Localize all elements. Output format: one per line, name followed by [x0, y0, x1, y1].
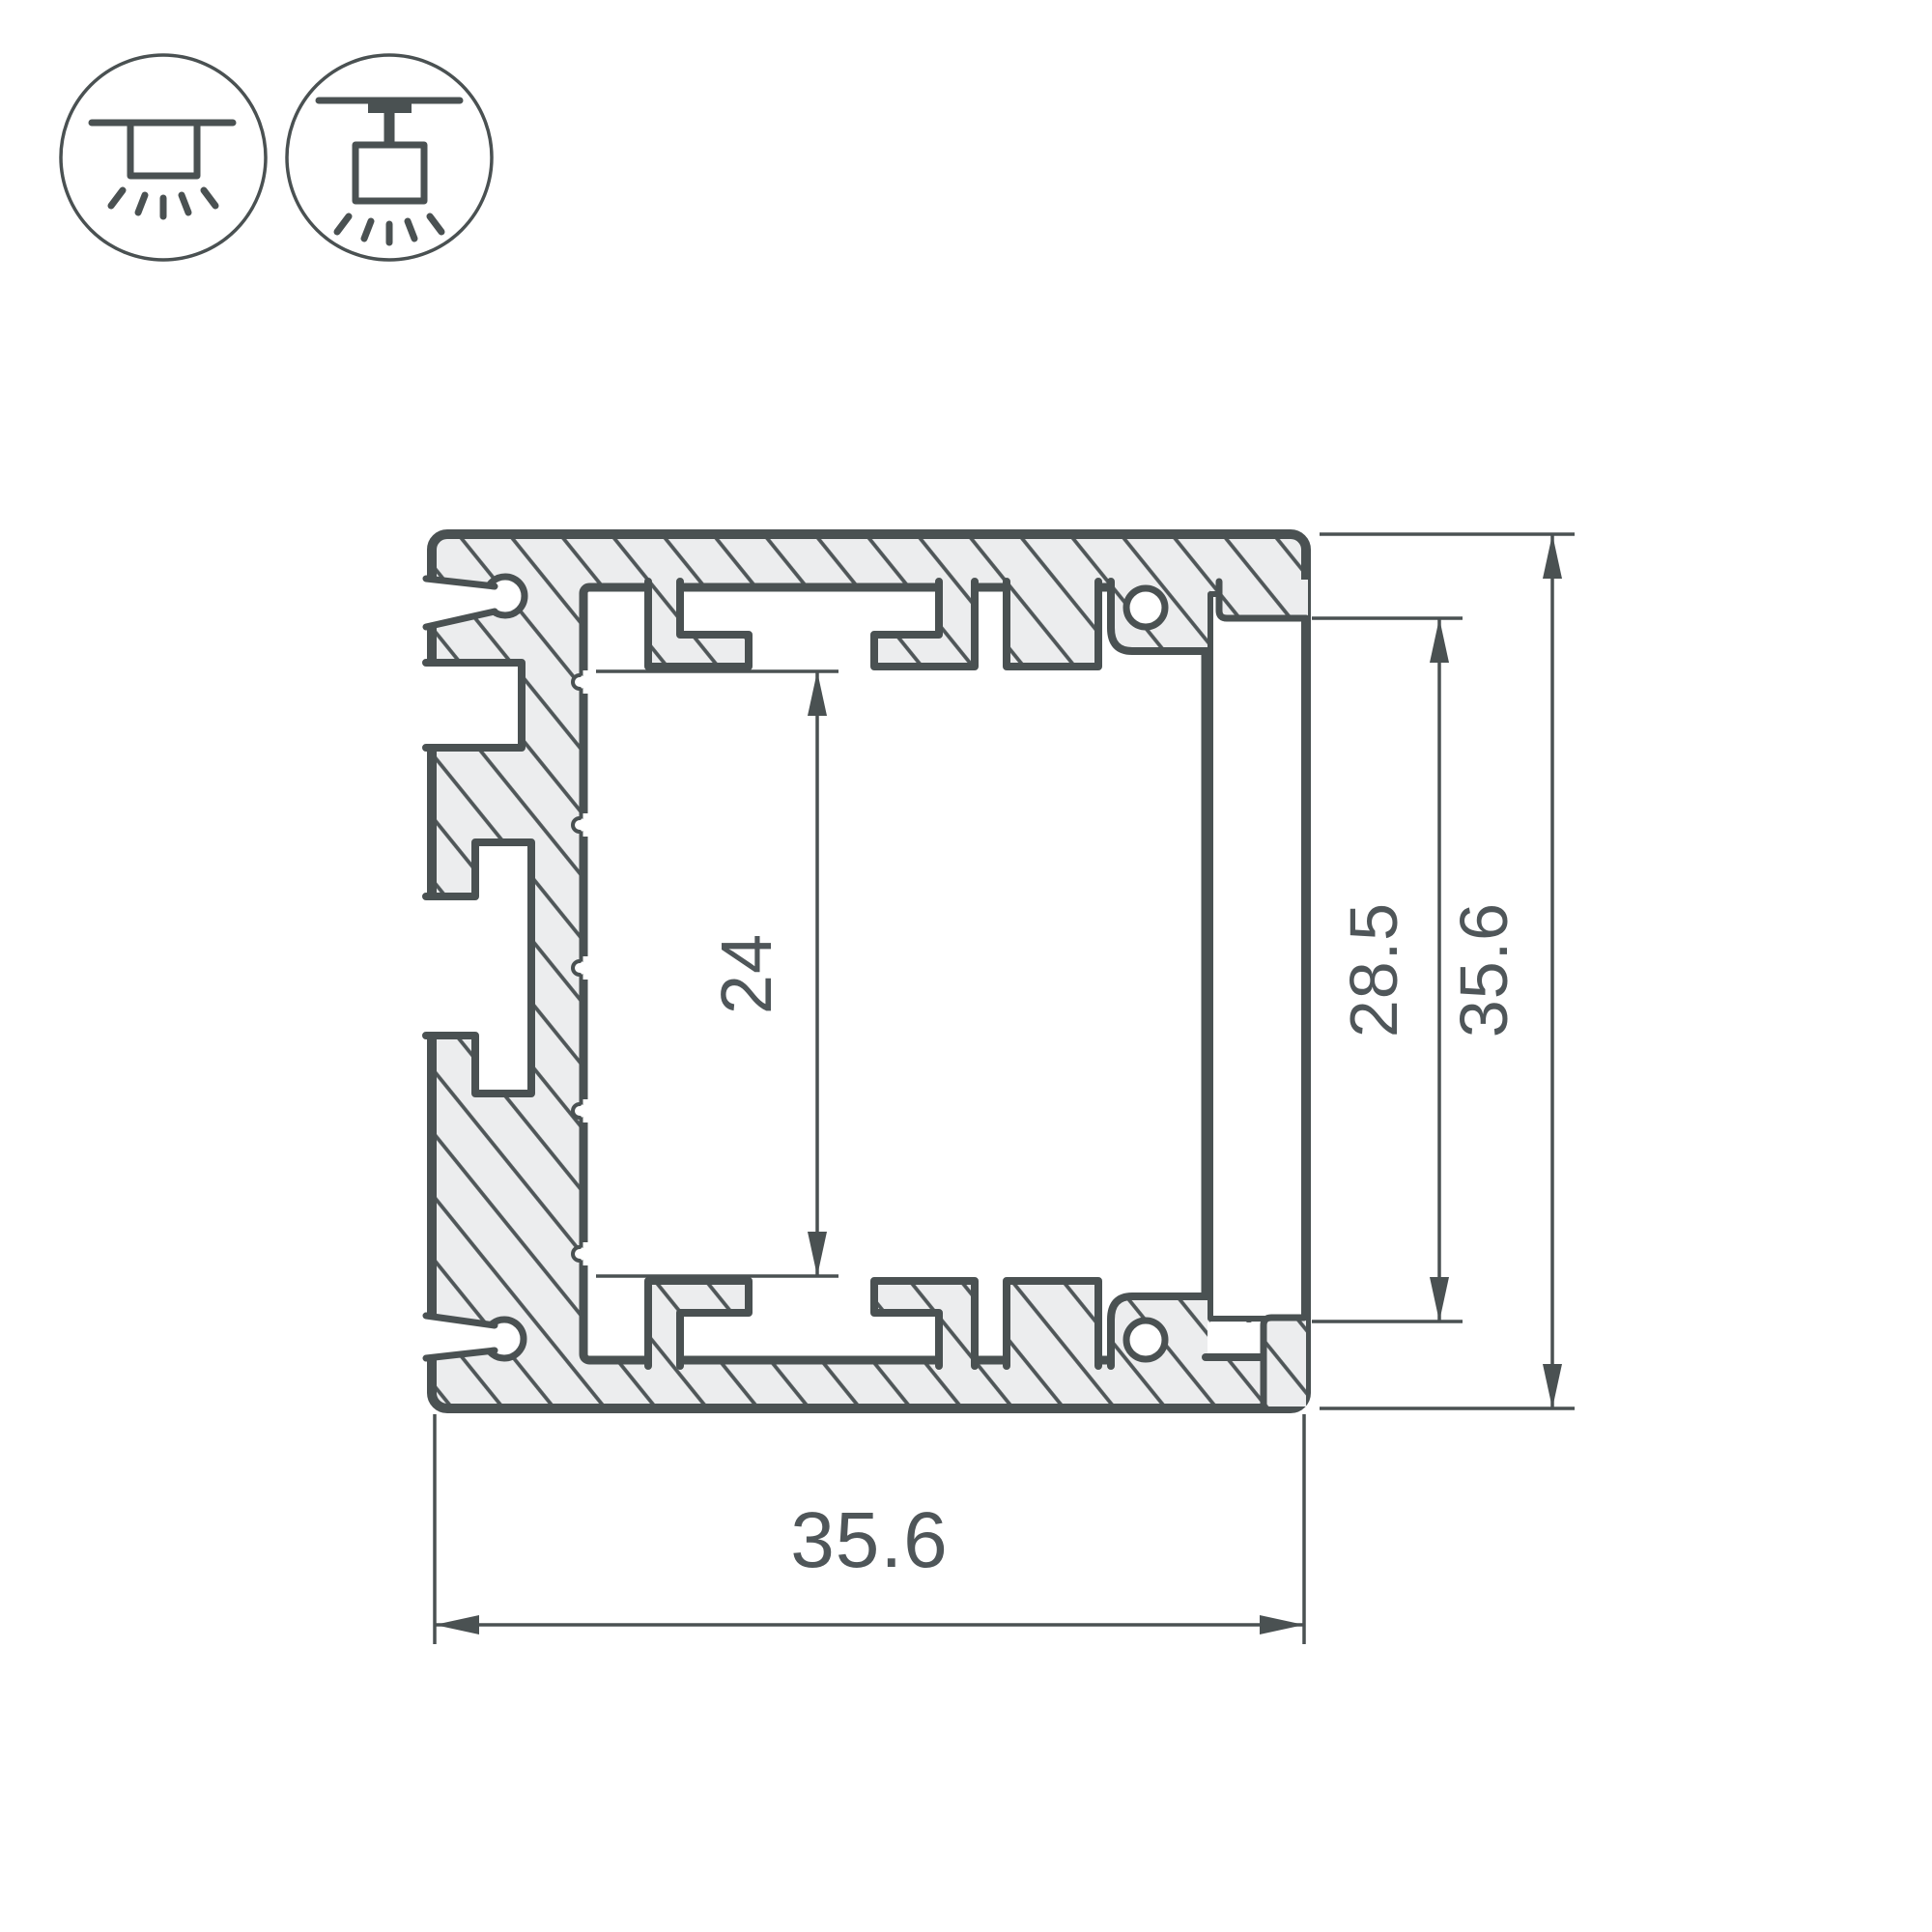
mount-icon-surface — [61, 55, 266, 260]
screen-hook-bottom — [1264, 1318, 1306, 1406]
profile-technical-drawing: 24 28.5 35.6 35.6 — [0, 0, 1932, 1932]
diffuser-screen — [1206, 594, 1304, 1357]
screw-channel-bottom-right — [1111, 1296, 1209, 1368]
arrowhead-down-icon — [1543, 1364, 1562, 1408]
dimension-screen-height: 28.5 — [1312, 618, 1463, 1321]
arrowhead-down-icon — [1430, 1277, 1449, 1321]
arrowhead-up-icon — [1543, 534, 1562, 579]
pendant-mount-lamp-icon — [319, 100, 460, 242]
arrowhead-left-icon — [435, 1615, 479, 1634]
surface-mount-lamp-icon — [92, 123, 233, 216]
dimension-label-35-6-width: 35.6 — [790, 1496, 949, 1584]
dimension-overall-width: 35.6 — [435, 1414, 1304, 1644]
arrowhead-right-icon — [1260, 1615, 1304, 1634]
left-notch — [422, 663, 522, 748]
screw-slot-bottom-left — [422, 1316, 524, 1358]
profile-cross-section — [422, 534, 1308, 1408]
arrowhead-up-icon — [1430, 618, 1449, 663]
dimension-label-28-5: 28.5 — [1336, 902, 1411, 1037]
screw-channel-top-right — [1111, 580, 1209, 651]
dimension-label-24: 24 — [706, 933, 786, 1014]
drawing-page: 24 28.5 35.6 35.6 — [0, 0, 1932, 1932]
led-cavity — [583, 587, 1206, 1360]
mount-icon-pendant — [287, 55, 492, 260]
dimension-label-35-6-height: 35.6 — [1446, 902, 1521, 1037]
screen-lip-top — [1219, 580, 1308, 618]
